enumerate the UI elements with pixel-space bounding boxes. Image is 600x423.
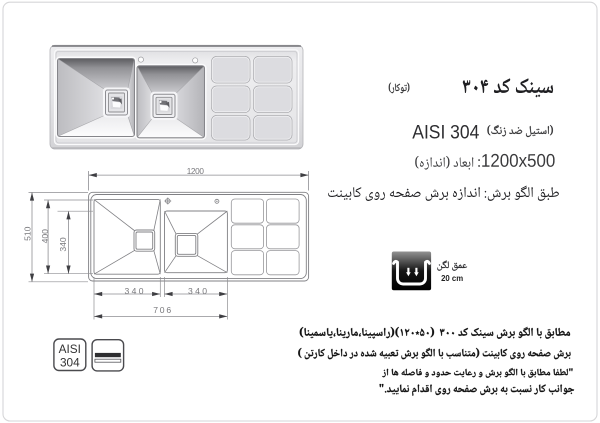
svg-text:510: 510 <box>23 226 33 241</box>
svg-text:706: 706 <box>153 305 171 315</box>
svg-text:304: 304 <box>60 356 80 370</box>
svg-text:340: 340 <box>58 237 68 252</box>
svg-text:400: 400 <box>40 229 50 244</box>
svg-text:AISI 304: AISI 304 <box>412 122 479 143</box>
svg-text:1200: 1200 <box>187 167 205 176</box>
svg-text:20 cm: 20 cm <box>441 273 463 283</box>
svg-text:AISI: AISI <box>59 342 81 356</box>
svg-text:340: 340 <box>125 286 144 296</box>
svg-text:340: 340 <box>188 286 207 296</box>
